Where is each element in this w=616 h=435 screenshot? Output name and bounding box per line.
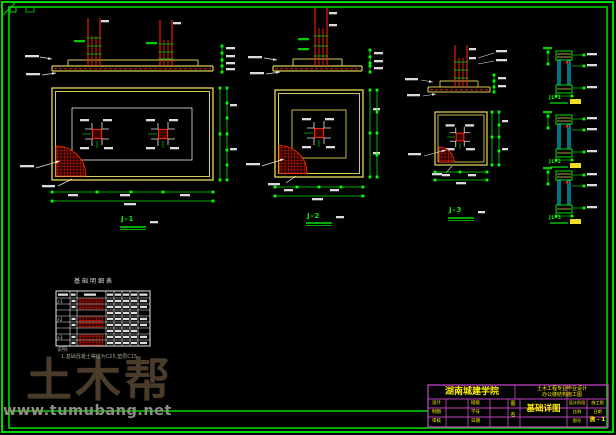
titleblock-right-r1b: 施工图	[588, 401, 607, 405]
watermark-url: www.tumubang.net	[3, 404, 172, 419]
titleblock-field-date: 日期	[471, 420, 480, 425]
detail-label-jl2: JL-2	[549, 160, 562, 165]
titleblock-project-line2: 办公楼结构施工图	[516, 393, 608, 398]
detail-label-jl1: JL-1	[549, 96, 562, 101]
table-row-label-2: J-2	[58, 318, 63, 322]
cad-sheet: 土木帮 www.tumubang.net J-1 J-2 J-3 JL-1 JL…	[0, 0, 616, 435]
titleblock-right-r1a: 设计阶段	[568, 401, 586, 405]
notes-heading: 说明:	[57, 348, 69, 353]
titleblock-fig-char: 图	[511, 402, 516, 407]
titleblock-field-sid: 学号	[471, 411, 480, 416]
table-row-label-3: J-3	[58, 336, 63, 340]
titleblock-project-line1: 土木工程专业毕业设计	[517, 387, 607, 392]
titleblock-right-r2a: 比例	[568, 410, 586, 414]
table-row-label-1: J-1	[58, 300, 63, 304]
plan-label-j1: J-1	[121, 216, 134, 223]
table-title: 基础明细表	[74, 279, 114, 285]
titleblock-right-r2b: 日期	[588, 410, 607, 414]
titleblock-field-design: 设计	[432, 402, 441, 407]
titleblock-field-check: 审核	[432, 420, 441, 425]
titleblock-field-class: 班级	[471, 402, 480, 407]
watermark-brand: 土木帮	[26, 357, 173, 403]
plan-label-j2: J-2	[307, 213, 320, 220]
titleblock-sheet-number: 施 - 1	[587, 418, 608, 424]
titleblock-org: 湖南城建学院	[430, 388, 514, 397]
detail-label-jl3: JL-3	[549, 216, 562, 221]
plan-label-j3: J-3	[449, 207, 462, 214]
titleblock-field-draft: 制图	[432, 411, 441, 416]
notes-line-1: 1.基础混凝土等级为C25,垫层C15	[61, 355, 137, 360]
titleblock-name-char: 名	[511, 413, 516, 418]
titleblock-right-r3a: 图号	[568, 419, 586, 423]
titleblock-drawing-name: 基础详图	[520, 405, 567, 414]
